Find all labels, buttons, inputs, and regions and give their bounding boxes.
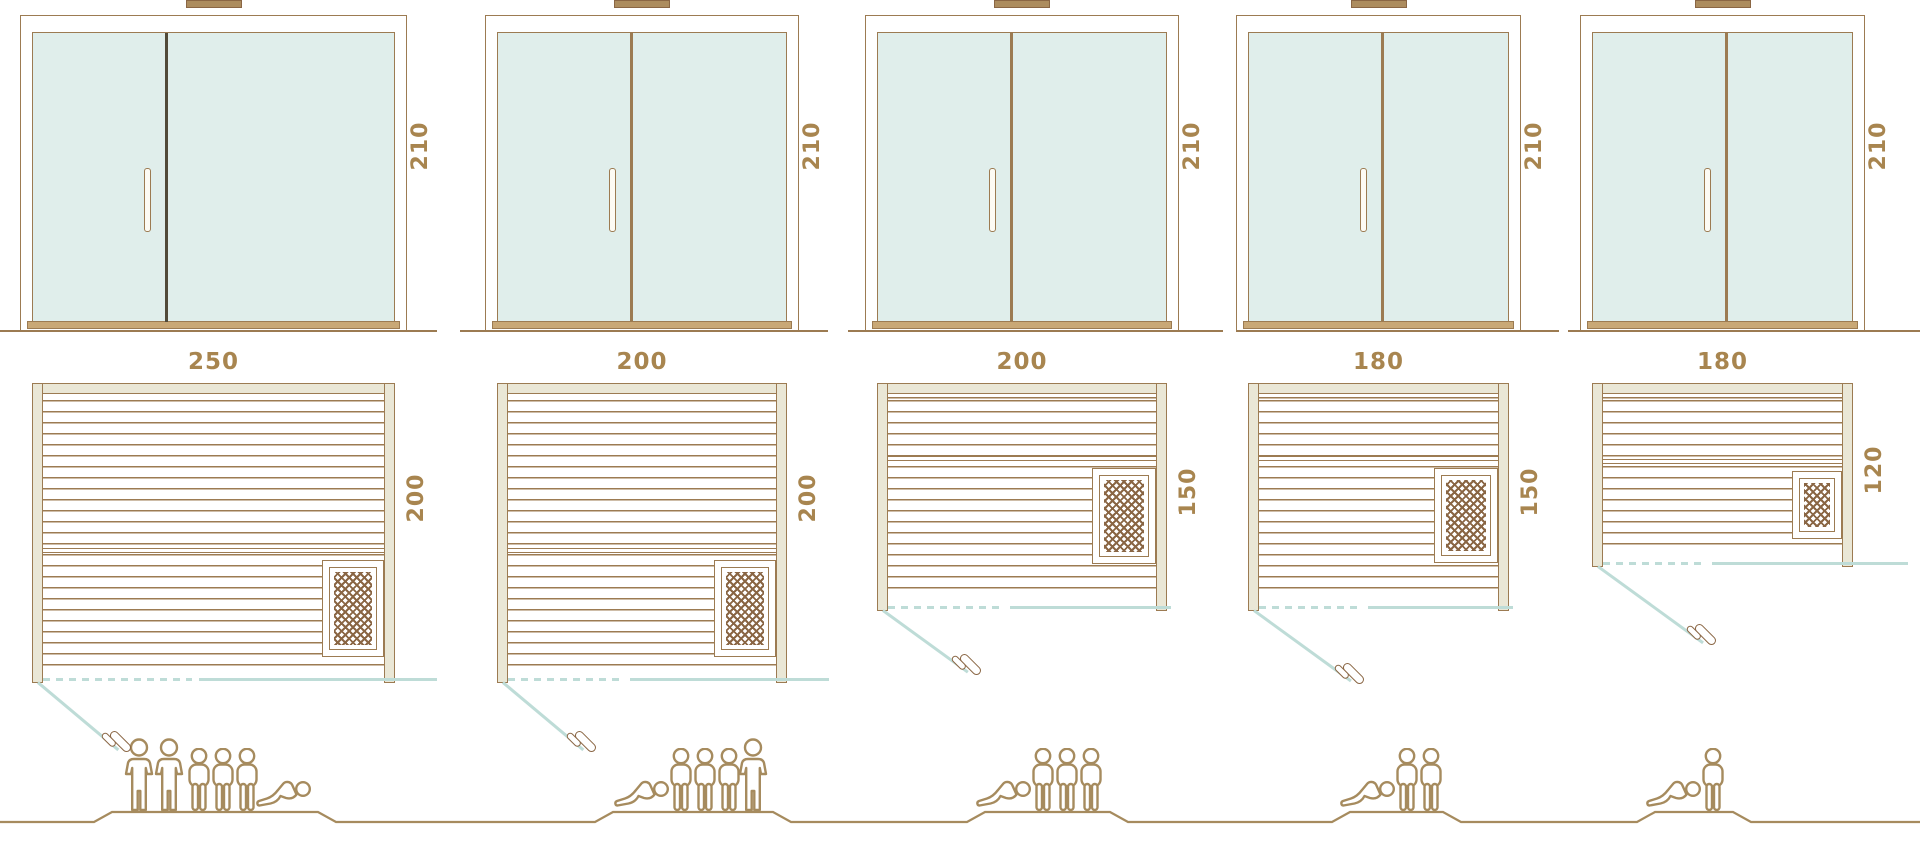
door-swing-handle [953, 652, 983, 682]
door-opening-dashed [43, 678, 192, 681]
plan-width-label: 180 [1248, 349, 1509, 375]
capacity-baseline [0, 812, 1920, 822]
plan-left-wall [1248, 383, 1259, 611]
plan-depth-label: 150 [1518, 457, 1544, 527]
door-height-label: 210 [408, 111, 434, 181]
door-divider [165, 33, 168, 322]
door-opening-dashed [1259, 606, 1363, 609]
person-lying-icon [615, 782, 667, 806]
plan-left-wall [877, 383, 888, 611]
door-opening-dashed [888, 606, 1005, 609]
door-height-label: 210 [1866, 111, 1892, 181]
heater-stones-hatch [726, 572, 764, 645]
bench-front-edge [1603, 459, 1842, 464]
door-threshold [27, 321, 400, 329]
heater-enclosure [714, 560, 776, 657]
person-standing-icon [156, 740, 182, 811]
plan-right-wall [1156, 383, 1167, 611]
door-divider [1010, 33, 1013, 322]
plan-back-wall [497, 383, 787, 394]
plan-back-wall [1592, 383, 1853, 394]
bench-front-edge [888, 456, 1156, 461]
bench-front-edge [1259, 456, 1498, 461]
door-glass-panel [877, 32, 1167, 324]
sauna-size-diagram: 2102502002102002002102001502101801502101… [0, 0, 1920, 856]
roof-vent [614, 0, 670, 8]
door-height-label: 210 [1522, 111, 1548, 181]
plan-back-wall [32, 383, 395, 394]
door-height-label: 210 [1180, 111, 1206, 181]
roof-vent [1351, 0, 1407, 8]
door-swing-handle [1336, 661, 1366, 691]
plan-depth-label: 150 [1176, 457, 1202, 527]
person-sitting-icon [1034, 749, 1053, 810]
person-lying-icon [977, 782, 1029, 806]
roof-vent [1695, 0, 1751, 8]
heater-stones-hatch [334, 572, 372, 645]
plan-depth-label: 200 [404, 463, 430, 533]
heater-enclosure [1434, 468, 1498, 563]
plan-right-wall [1498, 383, 1509, 611]
door-opening-dashed [1603, 562, 1707, 565]
door-threshold [872, 321, 1172, 329]
heater-enclosure [1792, 471, 1842, 539]
fixed-glass-line [1712, 562, 1908, 565]
door-glass-panel [1248, 32, 1509, 324]
plan-width-label: 250 [32, 349, 395, 375]
person-sitting-icon [1422, 749, 1441, 810]
person-standing-icon [740, 740, 766, 811]
capacity-figures [126, 740, 1723, 811]
plan-back-wall [1248, 383, 1509, 394]
plan-right-wall [384, 383, 395, 683]
plan-depth-label: 200 [796, 463, 822, 533]
bench-front-edge [43, 548, 384, 553]
person-sitting-icon [1058, 749, 1077, 810]
person-sitting-icon [1082, 749, 1101, 810]
plan-left-wall [497, 383, 508, 683]
plan-width-label: 180 [1592, 349, 1853, 375]
door-glass-panel [497, 32, 787, 324]
bench-front-edge [508, 548, 776, 553]
heater-stones-hatch [1446, 480, 1486, 551]
door-glass-panel [1592, 32, 1853, 324]
plan-depth-label: 120 [1862, 435, 1888, 505]
door-handle [144, 168, 151, 232]
person-sitting-icon [720, 749, 739, 810]
door-swing-handle [1688, 623, 1718, 653]
door-handle [989, 168, 996, 232]
door-height-label: 210 [800, 111, 826, 181]
heater-enclosure [322, 560, 384, 657]
door-threshold [492, 321, 792, 329]
plan-right-wall [776, 383, 787, 683]
roof-vent [186, 0, 242, 8]
person-sitting-icon [214, 749, 233, 810]
person-sitting-icon [696, 749, 715, 810]
plan-back-wall [877, 383, 1167, 394]
door-handle [609, 168, 616, 232]
person-sitting-icon [1398, 749, 1417, 810]
door-divider [630, 33, 633, 322]
fixed-glass-line [630, 678, 829, 681]
door-divider [1725, 33, 1728, 322]
fixed-glass-line [1010, 606, 1171, 609]
person-sitting-icon [672, 749, 691, 810]
heater-stones-hatch [1804, 483, 1830, 527]
door-threshold [1243, 321, 1514, 329]
door-glass-panel [32, 32, 395, 324]
roof-vent [994, 0, 1050, 8]
fixed-glass-line [1368, 606, 1513, 609]
person-sitting-icon [238, 749, 257, 810]
plan-width-label: 200 [497, 349, 787, 375]
door-handle [1360, 168, 1367, 232]
fixed-glass-line [199, 678, 437, 681]
door-threshold [1587, 321, 1858, 329]
person-lying-icon [1341, 782, 1393, 806]
person-sitting-icon [190, 749, 209, 810]
person-lying-icon [257, 782, 309, 806]
door-divider [1381, 33, 1384, 322]
person-lying-icon [1647, 782, 1699, 806]
heater-stones-hatch [1104, 480, 1144, 552]
plan-left-wall [1592, 383, 1603, 567]
plan-right-wall [1842, 383, 1853, 567]
plan-left-wall [32, 383, 43, 683]
plan-width-label: 200 [877, 349, 1167, 375]
heater-enclosure [1092, 468, 1156, 564]
capacity-figures-row [0, 720, 1920, 856]
person-sitting-icon [1704, 749, 1723, 810]
door-opening-dashed [508, 678, 625, 681]
door-handle [1704, 168, 1711, 232]
